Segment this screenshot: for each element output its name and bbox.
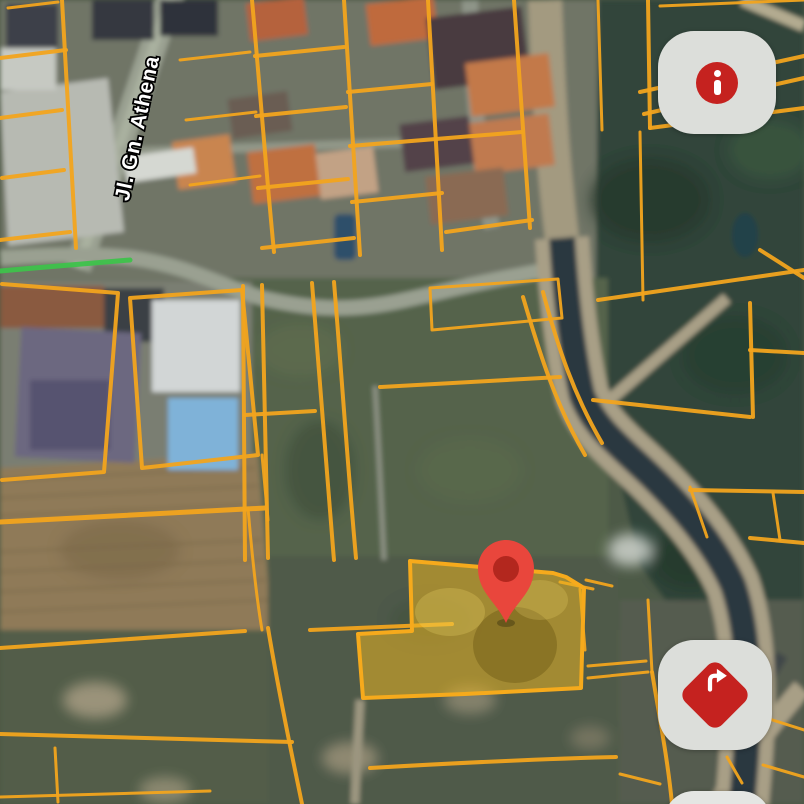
map-satellite-view: Jl. Gn. Athena	[0, 0, 804, 804]
directions-button[interactable]	[658, 640, 772, 750]
info-button[interactable]	[658, 31, 776, 134]
info-icon	[696, 62, 738, 104]
turn-right-icon	[678, 658, 752, 732]
pin-inner-dot	[493, 556, 519, 582]
